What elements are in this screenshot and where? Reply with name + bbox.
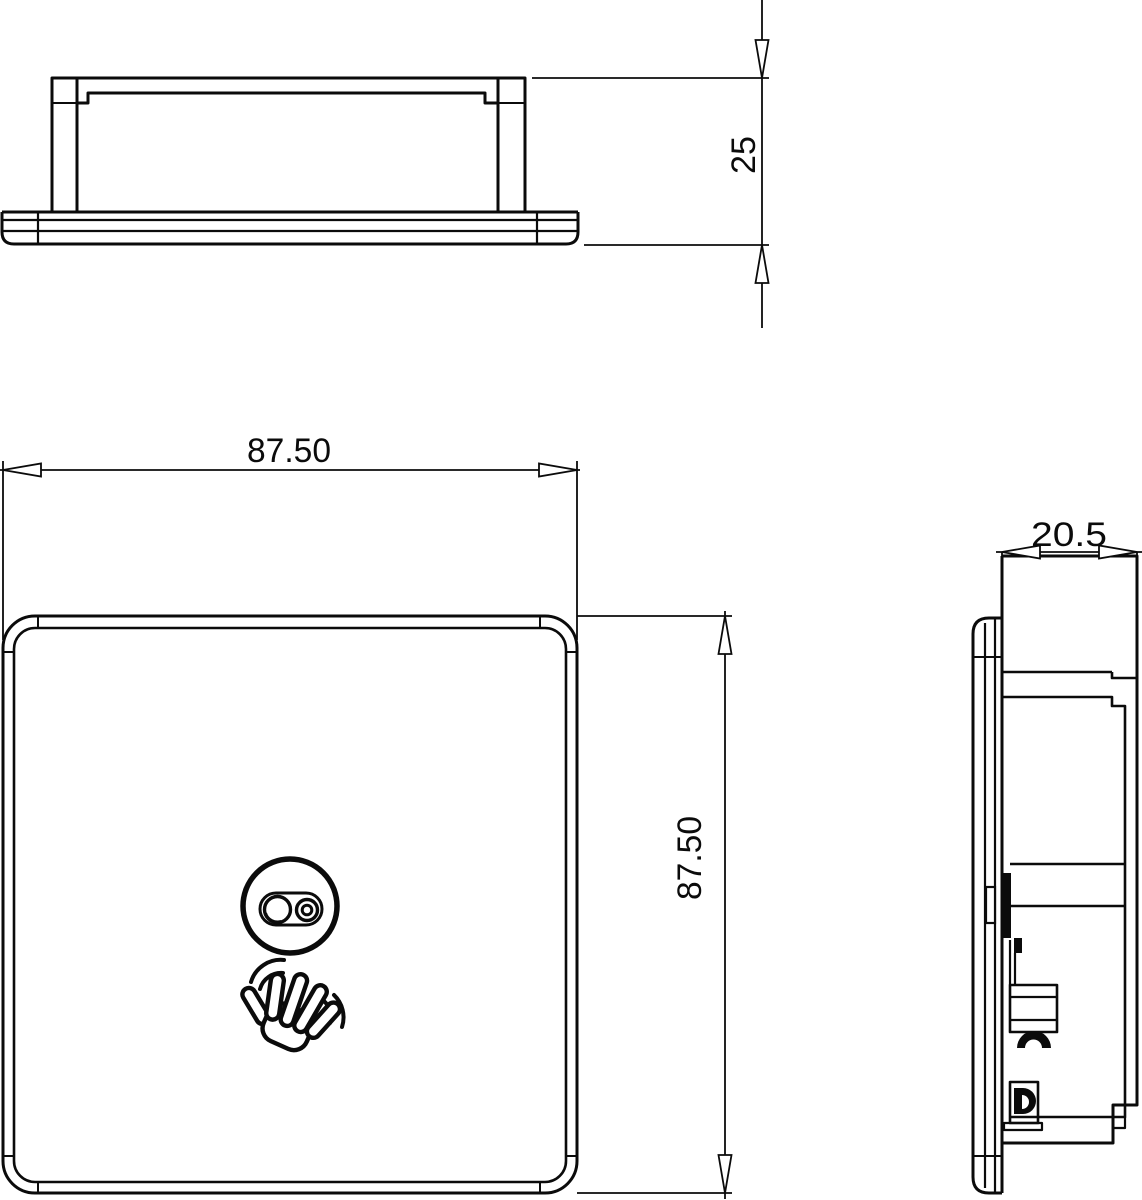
side-plate-slot	[986, 887, 995, 923]
arrowhead-up-icon	[719, 616, 732, 654]
drawing-canvas: 25	[0, 0, 1142, 1200]
dimension-front-height: 87.50	[577, 611, 732, 1199]
dim-extensions	[3, 461, 577, 640]
side-connector-bar	[1002, 873, 1011, 938]
dim-front-height-label: 87.50	[671, 816, 709, 900]
side-internal-shelf-lines	[1010, 864, 1125, 906]
arrowhead-up-icon	[756, 245, 769, 283]
side-housing-bottom-step	[1113, 1117, 1125, 1128]
technical-drawing-sheet: 25	[0, 0, 1142, 1200]
dim-front-width-label: 87.50	[247, 432, 331, 470]
top-view	[2, 78, 578, 244]
sensor-lens-right-outer	[297, 900, 318, 921]
side-small-block	[1014, 938, 1022, 953]
top-view-plate-outline	[2, 212, 578, 244]
top-view-inner-step-line	[77, 93, 498, 103]
side-bracket-lines	[1010, 997, 1057, 1020]
dim-side-depth-label: 20.5	[1031, 516, 1107, 554]
waving-hand-icon	[227, 954, 349, 1063]
side-housing-outline	[1002, 556, 1137, 1143]
sensor-lens-right-inner	[302, 905, 312, 915]
side-view	[973, 556, 1137, 1193]
dimension-housing-height: 25	[532, 0, 769, 328]
sensor-window-icon	[243, 859, 337, 953]
arrowhead-down-icon	[719, 1155, 732, 1193]
top-view-plate-end-dividers	[38, 212, 537, 244]
arrowhead-down-icon	[756, 40, 769, 78]
top-view-housing-walls	[77, 78, 498, 212]
side-housing-top-section-line	[1002, 672, 1137, 678]
dim-extensions	[577, 616, 732, 1193]
side-bracket	[1010, 985, 1057, 1032]
dim-housing-height-label: 25	[725, 136, 763, 174]
top-view-housing-outline	[52, 78, 525, 212]
side-spring-clip	[1017, 1031, 1051, 1048]
front-view	[3, 616, 577, 1193]
arrowhead-right-icon	[539, 464, 577, 477]
side-terminal-flange	[1004, 1123, 1042, 1130]
hand-shape	[227, 954, 349, 1063]
dimension-front-width: 87.50	[0, 432, 580, 640]
arrowhead-left-icon	[3, 464, 41, 477]
